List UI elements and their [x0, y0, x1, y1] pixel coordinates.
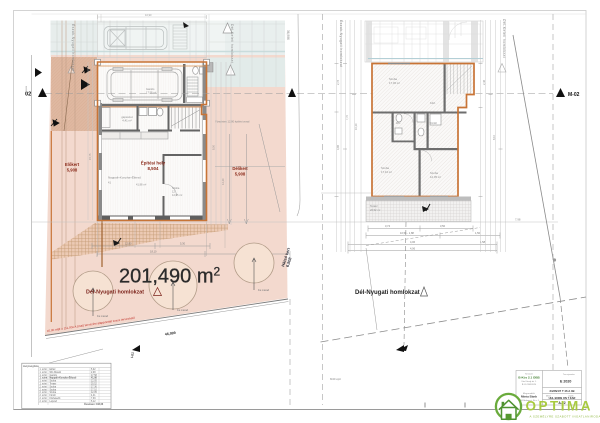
svg-text:17,10: 17,10	[91, 389, 97, 391]
svg-text:12,80: 12,80	[125, 242, 132, 246]
svg-text:2,08: 2,08	[91, 372, 96, 374]
svg-text:Tsz rajzszám:: Tsz rajzszám:	[563, 374, 576, 376]
svg-text:Szoba: Szoba	[50, 386, 57, 388]
svg-text:E 2020: E 2020	[560, 380, 571, 384]
svg-text:2,46: 2,46	[482, 79, 486, 85]
svg-text:WC-Mosdó: WC-Mosdó	[50, 372, 62, 374]
svg-text:5,908: 5,908	[235, 172, 246, 177]
svg-text:Lépcső: Lépcső	[50, 401, 58, 403]
svg-text:5,12: 5,12	[91, 401, 96, 403]
svg-text:2. szint: 2. szint	[40, 394, 48, 397]
svg-text:20,52: 20,52	[91, 384, 97, 386]
svg-text:Nappali+Konyha+Étkező: Nappali+Konyha+Étkező	[50, 377, 77, 380]
svg-text:12,05: 12,05	[91, 381, 97, 383]
svg-text:Szoba: Szoba	[50, 389, 57, 391]
svg-text:Szoba: Szoba	[172, 186, 180, 190]
svg-text:4,41: 4,41	[91, 395, 96, 397]
svg-text:Fürdő: Fürdő	[50, 394, 57, 397]
svg-text:WC: WC	[396, 121, 400, 125]
svg-text:1. szint: 1. szint	[40, 374, 48, 377]
svg-text:Fa marad: Fa marad	[97, 314, 109, 318]
svg-text:12,05 m²: 12,05 m²	[430, 175, 441, 179]
svg-text:18,10: 18,10	[150, 250, 157, 254]
svg-text:2. szint: 2. szint	[40, 388, 48, 391]
svg-text:17,36: 17,36	[91, 386, 97, 388]
svg-text:201,490 m2: 201,490 m2	[119, 265, 221, 288]
svg-text:Fürdő: Fürdő	[430, 121, 437, 125]
svg-text:2. szint: 2. szint	[40, 400, 48, 403]
svg-text:4,41 m²: 4,41 m²	[122, 119, 132, 123]
svg-text:36,986: 36,986	[286, 30, 290, 40]
svg-text:Garázs: Garázs	[146, 87, 155, 91]
svg-text:10,20: 10,20	[354, 123, 358, 130]
svg-text:12,20: 12,20	[221, 178, 225, 185]
svg-text:4,06: 4,06	[410, 247, 416, 251]
svg-text:A SZEMÉLYRE SZABOTT INGATLANIR: A SZEMÉLYRE SZABOTT INGATLANIRODA	[530, 413, 600, 418]
svg-text:Észak-Nyugati homlokzat: Észak-Nyugati homlokzat	[339, 20, 344, 67]
svg-text:2. szint: 2. szint	[40, 391, 48, 394]
svg-text:Délikert: Délikert	[232, 166, 248, 171]
svg-text:É 01-2345/2020: É 01-2345/2020	[522, 383, 537, 386]
svg-text:Észak-Nyugati homlokzat: Észak-Nyugati homlokzat	[71, 24, 76, 71]
svg-text:Építési hely: Építési hely	[141, 161, 166, 166]
svg-text:8,504: 8,504	[148, 166, 160, 171]
svg-text:Előkert: Előkert	[65, 162, 80, 167]
svg-text:1. szint: 1. szint	[40, 380, 48, 383]
svg-text:metszet: metszet	[25, 86, 28, 95]
svg-text:12,05 m²: 12,05 m²	[172, 193, 182, 197]
svg-text:4,06: 4,06	[410, 240, 416, 244]
svg-text:7,70: 7,70	[345, 114, 349, 120]
svg-text:Szoba: Szoba	[50, 392, 57, 394]
svg-text:Terasz: Terasz	[50, 383, 58, 386]
svg-text:Összesen: 162,66: Összesen: 162,66	[84, 403, 104, 406]
svg-text:Kós Károly tér 1.: Kós Károly tér 1.	[522, 380, 537, 383]
svg-text:7,39: 7,39	[91, 398, 96, 400]
svg-text:Szoba: Szoba	[50, 381, 57, 383]
svg-text:Előtér: Előtér	[50, 368, 56, 371]
svg-text:1,50: 1,50	[475, 231, 481, 235]
svg-text:12,05: 12,05	[91, 392, 97, 394]
svg-text:OPTIMA: OPTIMA	[526, 399, 594, 414]
svg-text:1. szint: 1. szint	[40, 368, 48, 371]
svg-text:17,58: 17,58	[91, 375, 97, 377]
svg-text:Nappali+Konyha+Étkező: Nappali+Konyha+Étkező	[108, 175, 141, 180]
svg-text:17,10 m²: 17,10 m²	[381, 170, 392, 174]
svg-text:4,86: 4,86	[336, 144, 340, 150]
svg-text:24/36/4/7 T 46 A 4B: 24/36/4/7 T 46 A 4B	[550, 389, 575, 393]
svg-text:B-Kós 2.1 OBB: B-Kós 2.1 OBB	[518, 376, 540, 380]
svg-text:Vízszintes 12,80 építési vonal: Vízszintes 12,80 építési vonal	[215, 120, 250, 124]
svg-text:20,52 m²: 20,52 m²	[370, 208, 380, 212]
svg-text:2,76: 2,76	[336, 79, 340, 85]
svg-text:M-02: M-02	[568, 92, 580, 98]
svg-text:Dél-Keleti homlokzat: Dél-Keleti homlokzat	[502, 19, 506, 58]
svg-text:1,58: 1,58	[480, 240, 486, 244]
svg-text:Dél-Nyugati homlokzat: Dél-Nyugati homlokzat	[355, 290, 420, 296]
svg-text:7,98: 7,98	[515, 218, 521, 222]
svg-text:17,36 m²: 17,36 m²	[389, 81, 400, 85]
svg-text:2. szint: 2. szint	[40, 397, 48, 400]
svg-text:41,98 m²: 41,98 m²	[136, 183, 146, 187]
svg-text:10,90: 10,90	[145, 13, 152, 17]
svg-text:41,98: 41,98	[91, 377, 97, 380]
svg-text:8,10: 8,10	[492, 134, 496, 140]
svg-text:Helyiséglista: Helyiséglista	[23, 364, 39, 368]
svg-text:15,75: 15,75	[88, 153, 92, 160]
svg-text:Közlekedő: Közlekedő	[50, 398, 61, 400]
svg-text:5,30: 5,30	[180, 242, 186, 246]
svg-text:Fa marad: Fa marad	[258, 288, 270, 292]
svg-text:2. szint: 2. szint	[40, 385, 48, 388]
svg-text:Dél-Keleti homlokzat: Dél-Keleti homlokzat	[230, 24, 234, 63]
svg-text:M40 épít: M40 épít	[330, 377, 341, 381]
svg-text:5,02: 5,02	[91, 369, 96, 371]
svg-text:Fa marad: Fa marad	[177, 308, 189, 312]
svg-text:Dél-Nyugati homlokzat: Dél-Nyugati homlokzat	[86, 290, 144, 296]
svg-text:17,58 m²: 17,58 m²	[146, 91, 156, 95]
svg-text:3,50: 3,50	[440, 224, 446, 228]
svg-text:Garázs: Garázs	[50, 374, 58, 377]
svg-text:1. szint: 1. szint	[40, 383, 48, 386]
svg-text:Terasz: Terasz	[370, 204, 378, 208]
svg-text:5,908: 5,908	[67, 168, 78, 173]
svg-text:3,74: 3,74	[385, 224, 391, 228]
svg-text:1. szint: 1. szint	[40, 377, 48, 380]
svg-text:Közl.: Közl.	[430, 101, 436, 105]
svg-text:8,50: 8,50	[212, 144, 216, 150]
svg-text:1. szint: 1. szint	[40, 371, 48, 374]
svg-text:10,56 - 1,88: 10,56 - 1,88	[400, 231, 414, 235]
